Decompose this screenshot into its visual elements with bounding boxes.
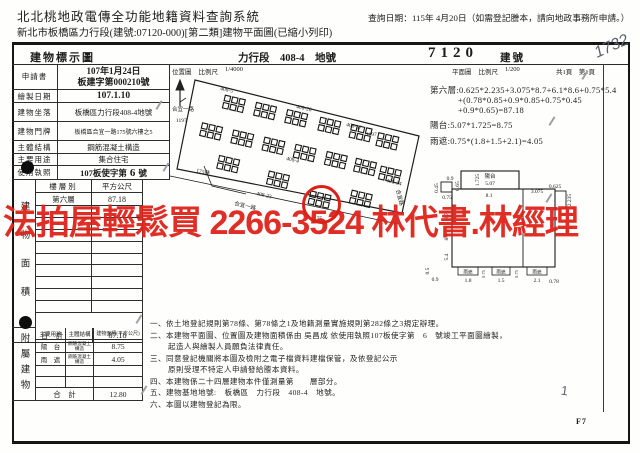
map-label-lot-408-4: 408-4 [286,156,300,165]
drawn-date: 107.1.10 [58,90,169,102]
annex-row-balcony: 陽 台 鋼筋混凝土構造 8.75 [36,340,142,353]
location-map: 408-5 408-26 408-37 合宜一路 1197 1197 408-4… [168,62,430,282]
building-info-table: 申請書 107年1月24日 板建字第000210號 繪製日期 107.1.10 … [12,64,170,180]
note-line-4: 三、同意登記機關將本圖及檢附之電子檔資料建檔保管，及依登記公示 [150,353,398,364]
document-subtitle: 新北市板橋區力行段(建號:07120-000)[第二類]建物平面圖(已縮小列印) [17,24,332,39]
doc-title: 建物標示圖 [30,49,95,65]
dim-canopy-end: 0.78 [549,279,559,285]
row-label: 繪製日期 [12,90,58,102]
query-date: 查詢日期：115年 4月20日（如需登記謄本，請向地政事務所申請。） [368,11,629,24]
empty-row [36,289,142,301]
empty-row [36,301,142,313]
col-annex-area: 建物面積(平方公尺) [94,328,142,339]
table-row: 主體結構 鋼筋混凝土構造 [12,141,169,154]
empty-row [36,254,142,266]
dim-jog-top: 0.9 [447,176,454,182]
map-label-lot-408-5: 408-5 [220,86,234,95]
col-structure: 主體結構 [66,328,94,339]
plan-scale-value: 1/200 [505,66,520,76]
note-line-3: 起造人與繪製人員願負法律責任。 [168,341,288,352]
row-label: 申請書 [12,64,58,89]
registration-dot [19,316,32,329]
north-arrow-icon [176,80,186,106]
application-date: 107年1月24日 [86,66,140,77]
red-circle-highlight [302,185,341,224]
note-line-1: 一、依土地登記規則第78條、第78條之1及地籍測量實施規則第282條之3規定辦理… [150,318,444,329]
floor-plan-header: 平面圖 比例尺 1/200 [452,66,520,76]
row-label: 建物門牌 [12,122,58,140]
dim-canopy-gap2: 0.75 [514,269,519,277]
building-number-label: 建號 [500,50,525,65]
row-value: 107年1月24日 板建字第000210號 [58,64,169,89]
note-line-7: 五、建物基地地號: 板橋區 力行段 408-4 地號。 [150,387,340,398]
annex-header-row: 主要用途 主體結構 建物面積(平方公尺) [36,328,142,340]
dim-balcony-width: 5.07 [485,181,495,187]
annex-area-value: 8.75 [94,340,142,352]
dim-left-c: 5.4 [444,253,450,260]
map-label-road-left: 合宜一路 [172,105,195,113]
dim-canopy-w1: 1.8 [465,278,472,284]
canopy-label-2: 雨遮 [496,269,506,276]
area-header-row: 樓層別 平方公尺 [36,180,142,193]
table-row: 建物門牌 板橋區合宜一路175號六樓之5 [12,122,169,141]
map-label-lane-175: 175巷 [196,166,212,177]
table-row: 主要用途 集合住宅 [12,154,169,166]
license-number: 6 [130,167,136,179]
building-location: 板橋區力行段408-4地號 [58,103,169,121]
table-row: 使用執照 107板使字第 6 號 [12,166,169,180]
note-line-6: 四、本建物係二十四層建物本件僅測量第 層部分。 [150,376,342,387]
dim-canopy-w2: 1.5 [498,278,505,284]
calc-line-balcony: 陽台:5.07*1.725=8.75 [430,119,513,131]
annex-side-label: 附屬建物 [12,328,36,400]
dim-canopy-gap1: 0.75 [481,269,486,277]
note-line-5: 原則受理不特定人申請發給謄本資料。 [168,364,304,375]
row-label: 使用執照 [12,166,58,179]
row-label: 建物坐落 [12,103,58,121]
main-structure: 鋼筋混凝土構造 [58,141,169,153]
application-doc-no: 板建字第000210號 [77,77,149,88]
building-address: 板橋區合宜一路175號六樓之5 [58,122,169,140]
dim-balcony-depth: 1.725 [475,174,481,187]
col-use: 主要用途 [36,328,66,339]
empty-row [36,277,142,289]
plan-title: 平面圖 [452,66,472,76]
table-row: 繪製日期 107.1.10 [12,90,169,103]
note-line-2: 二、本建物平面圖、位置圖及建物面積係由 吳昌成 依使用執照107板使字第 6 號… [150,330,507,341]
empty-row [36,265,142,277]
annex-total-value: 12.80 [94,388,142,400]
row-label: 主要用途 [12,154,58,165]
building-number: 7120 [428,45,478,62]
note-line-8: 六、本圖以建物登記為限。 [150,399,246,410]
document-scan-page: 北北桃地政電傳全功能地籍資料查詢系統 查詢日期：115年 4月20日（如需登記謄… [0,0,640,453]
col-area: 平方公尺 [92,180,142,192]
calc-line-cont1: +(0.78*0.85+0.9*0.85+0.75*0.45 [458,95,582,105]
dim-bottomleft-a: 0.5 [425,267,431,274]
realtor-stamp-text: 法拍屋輕鬆買 2266-3524 林代書.林經理 [3,195,578,244]
annex-total-row: 合 計 12.80 [36,388,142,400]
annex-structure: 鋼筋混凝土構造 [66,353,94,365]
system-title: 北北桃地政電傳全功能地籍資料查詢系統 [17,6,260,25]
dim-balcony-label: 陽台 [484,172,496,180]
dim-canopy-w3: 2.1 [534,278,541,284]
plan-scale-label: 比例尺 [479,66,499,76]
annex-area-value: 4.05 [94,353,142,365]
dim-jog-left: 0.45 [434,183,440,193]
empty-row [36,377,142,388]
license-suffix: 號 [138,167,147,179]
row-label: 主體結構 [12,141,58,153]
dim-bottomleft-b: 0.9 [432,277,439,283]
calc-line-canopy: 雨遮:0.75*(1.8+1.5+2.1)=4.05 [430,135,543,147]
table-row: 申請書 107年1月24日 板建字第000210號 [12,64,169,90]
annex-row-canopy: 雨 遮 鋼筋混凝土構造 4.05 [36,353,142,366]
canopy-label-1: 雨遮 [463,269,473,276]
page-code: F7 [576,417,587,426]
annex-total-label: 合 計 [36,388,94,400]
canopy-label-3: 雨遮 [532,269,542,276]
calc-line-cont2: +0.9*0.65)=87.18 [458,105,524,115]
annex-building-table: 附屬建物 主要用途 主體結構 建物面積(平方公尺) 陽 台 鋼筋混凝土構造 8.… [12,328,143,401]
use-license: 107板使字第 6 號 [58,166,169,179]
table-row: 建物坐落 板橋區力行段408-4地號 [12,103,169,122]
main-use: 集合住宅 [58,154,169,165]
map-label-lot-1197-b: 1197 [366,132,377,138]
jog-outline [441,182,452,192]
annex-structure: 鋼筋混凝土構造 [66,340,94,352]
col-floor: 樓層別 [36,180,92,192]
license-prefix: 107板使字第 [80,167,127,179]
annex-use: 陽 台 [36,340,66,352]
empty-row [36,366,142,377]
plan-page-count: 共1頁 第1頁 [556,66,595,76]
annex-use: 雨 遮 [36,353,66,365]
registration-dot [21,161,34,174]
map-label-lot-1197-a: 1197 [176,118,187,124]
dim-jog-right: 0.65 [455,181,461,191]
dim-right-b: 0.625 [549,184,562,190]
